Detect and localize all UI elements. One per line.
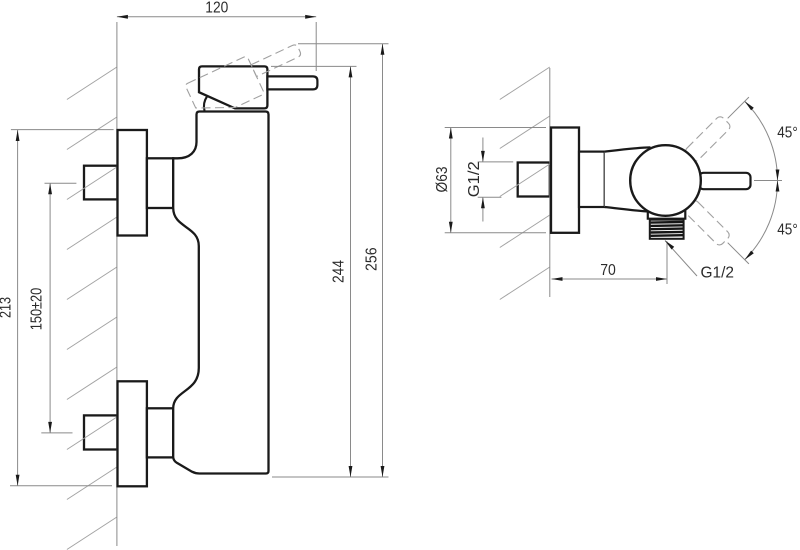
svg-text:45°: 45° [777,222,798,239]
svg-text:120: 120 [205,0,228,16]
svg-text:213: 213 [0,297,15,318]
svg-text:256: 256 [364,247,381,271]
svg-text:45°: 45° [777,125,798,142]
svg-text:150±20: 150±20 [29,288,46,331]
svg-text:Ø63: Ø63 [434,166,451,192]
svg-text:G1/2: G1/2 [466,161,483,197]
svg-text:70: 70 [600,262,616,279]
svg-text:G1/2: G1/2 [701,265,735,282]
svg-text:244: 244 [331,260,348,283]
